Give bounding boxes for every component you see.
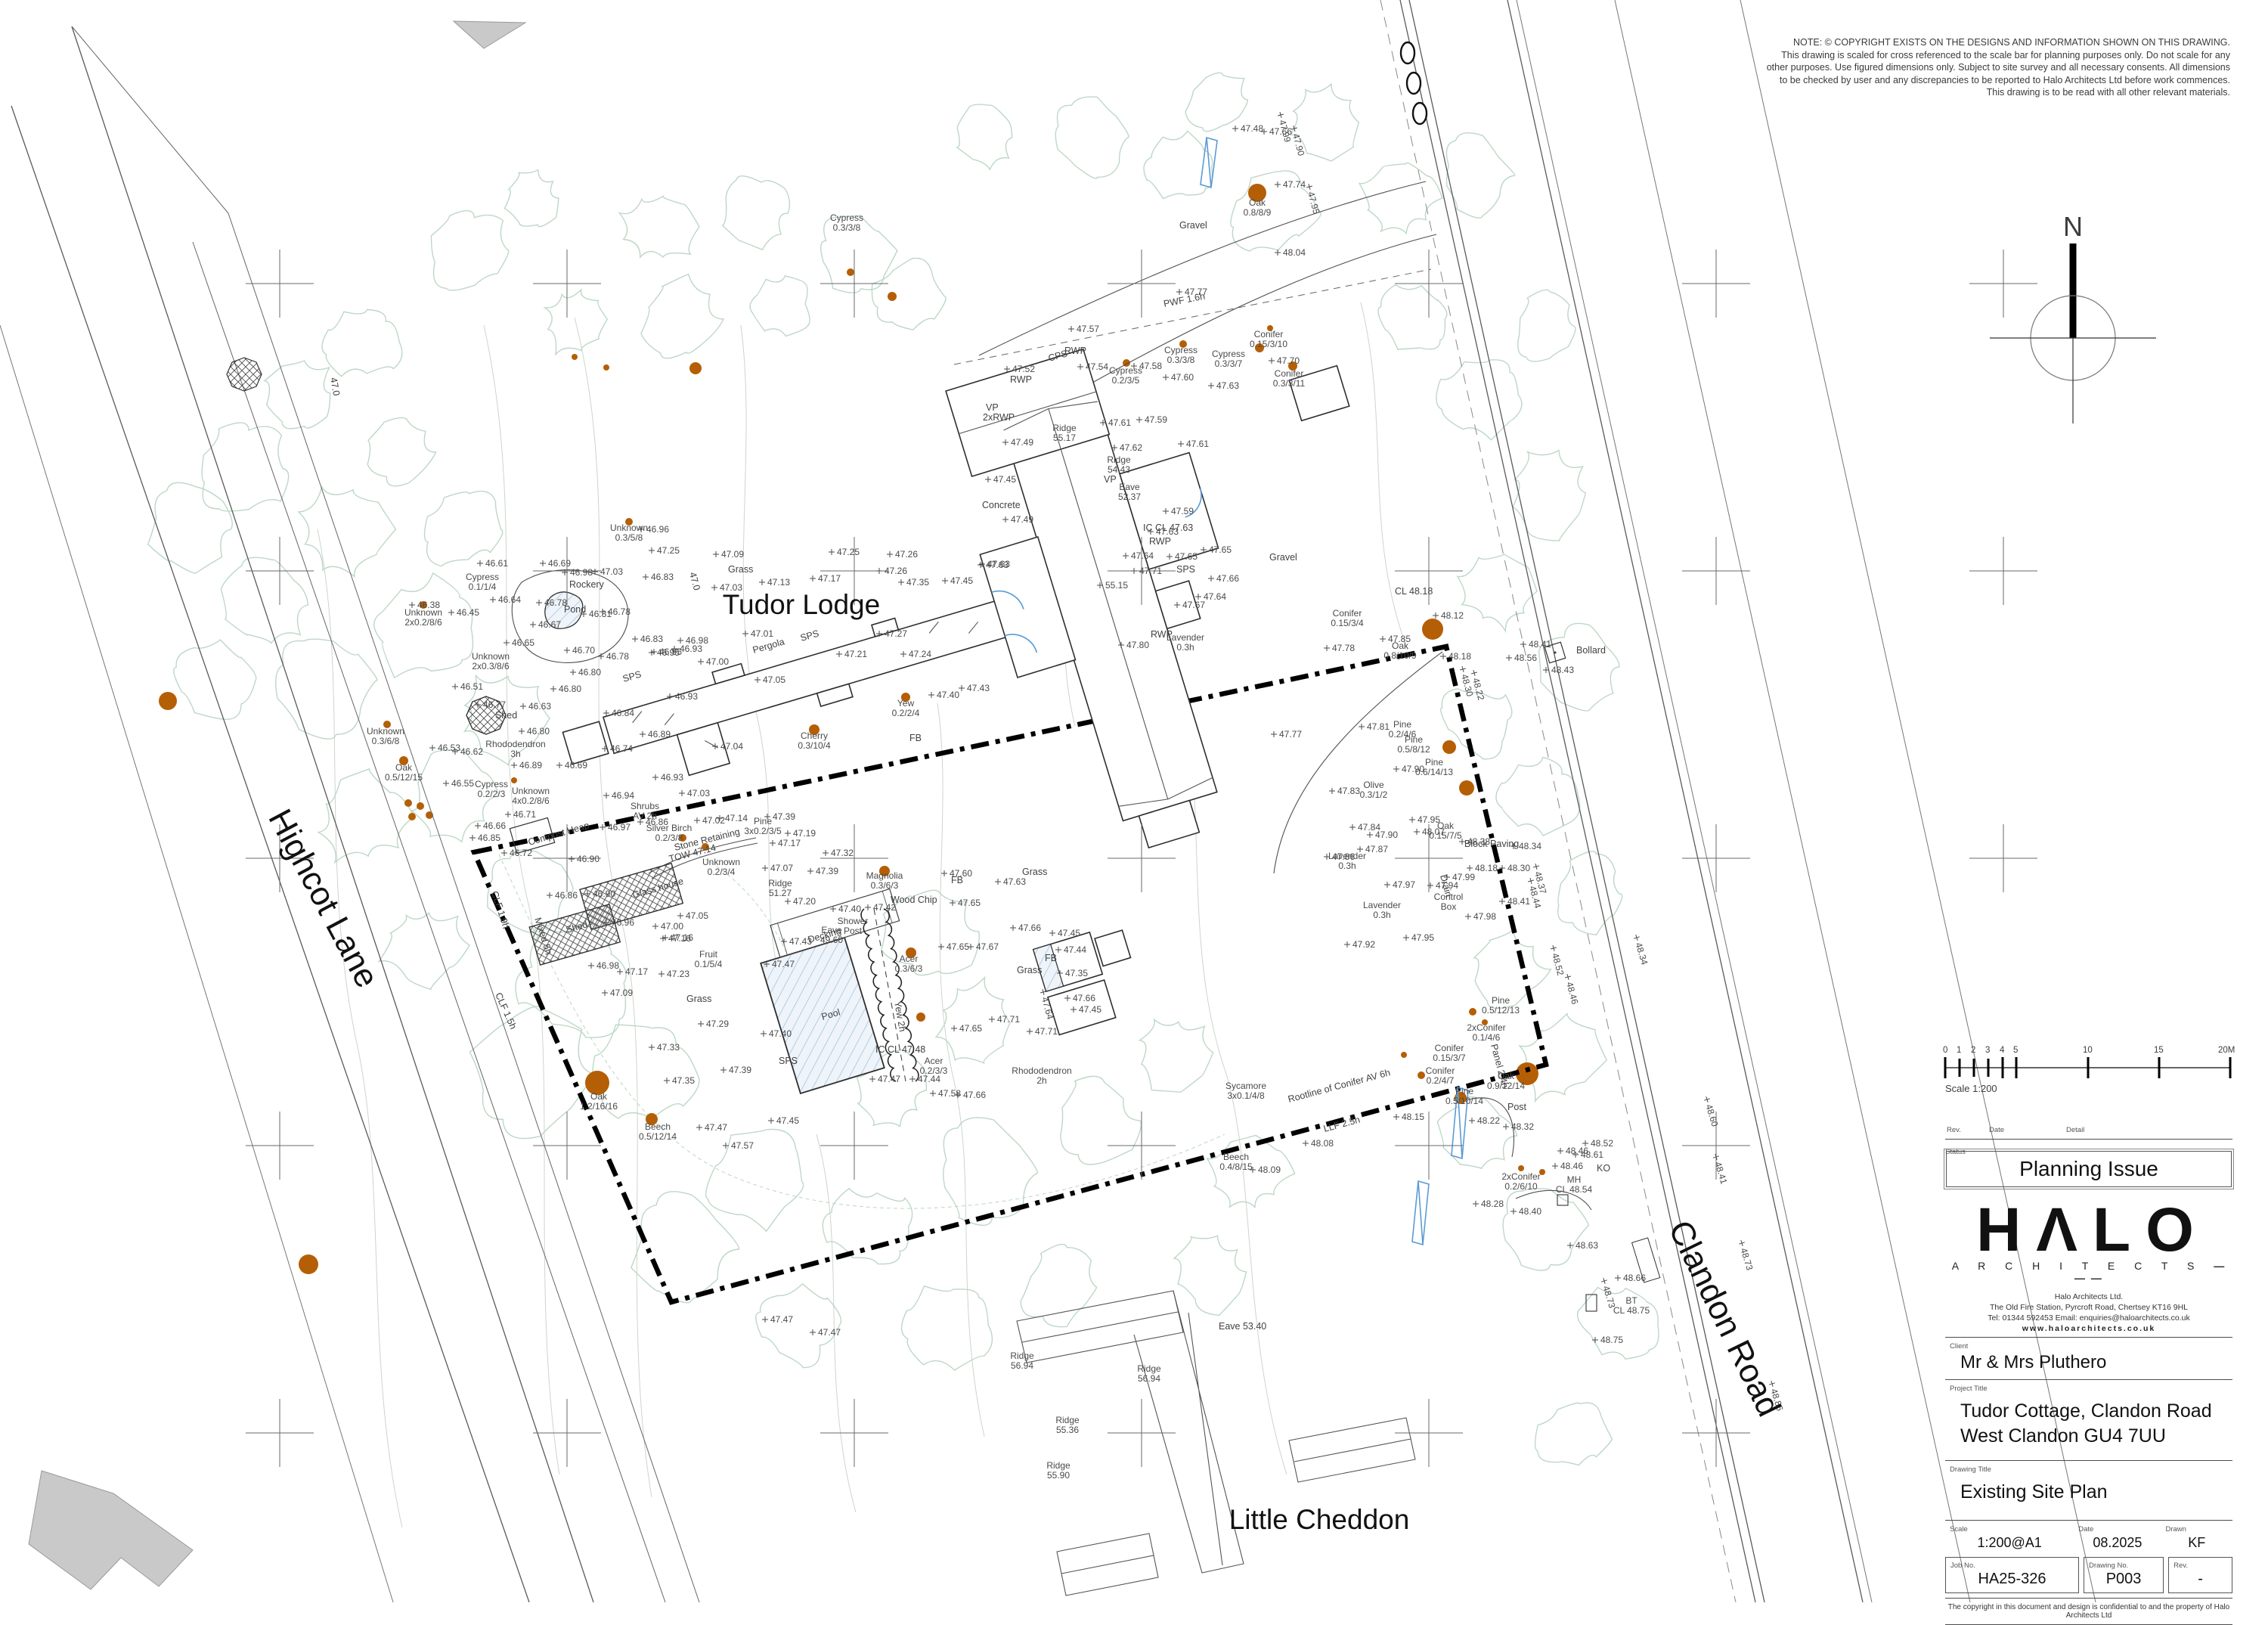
spot-height: 47.71 (1027, 1026, 1058, 1037)
svg-text:48.04: 48.04 (1283, 247, 1306, 258)
tree-schedule-label: Oak0.5/12/15 (385, 762, 423, 783)
spot-height: 46.78 (598, 651, 629, 662)
number-boxes-row: Job No. HA25-326 Drawing No. P003 Rev. - (1945, 1555, 2232, 1598)
svg-text:47.97: 47.97 (1393, 879, 1415, 890)
svg-text:47.87: 47.87 (1365, 844, 1388, 854)
grid-cross-icon (1969, 824, 2037, 892)
project-line1: Tudor Cottage, Clandon Road (1960, 1399, 2228, 1424)
project-label: Project Title (1950, 1385, 1988, 1393)
svg-text:46.86: 46.86 (555, 890, 578, 901)
practice-name: Halo Architects Ltd. (1945, 1292, 2232, 1302)
feature-label: CLF 1.5h (493, 991, 519, 1031)
scale-tick: 4 (2000, 1046, 2005, 1055)
job-no-value: HA25-326 (1950, 1571, 2074, 1588)
svg-text:46.45: 46.45 (457, 607, 479, 618)
grid-cross-icon (246, 1112, 314, 1180)
svg-text:47.09: 47.09 (721, 549, 744, 560)
tree-schedule-label: Unknown2x0.2/8/6 (404, 607, 442, 628)
svg-text:47.47: 47.47 (772, 959, 795, 969)
tree-schedule-label: ShrubsAV 2h (631, 801, 659, 821)
copyright-line: other purposes. Use figured dimensions o… (1731, 61, 2230, 74)
svg-text:46.65: 46.65 (512, 637, 534, 648)
copyright-line: NOTE: © COPYRIGHT EXISTS ON THE DESIGNS … (1731, 36, 2230, 49)
spot-height: 46.98 (588, 960, 619, 971)
tree-schedule-label: Ridge51.27 (768, 878, 792, 898)
tree-schedule-label: Ridge55.36 (1055, 1415, 1080, 1435)
spot-height: 47.59 (1136, 414, 1167, 425)
spot-height: 47.17 (810, 573, 841, 584)
tree-canopy (431, 211, 508, 290)
tree-schedule-label: Ridge55.90 (1046, 1460, 1070, 1481)
drawing-title-section: Drawing Title Existing Site Plan (1945, 1460, 2232, 1520)
svg-text:46.80: 46.80 (559, 684, 581, 694)
feature-label: VP (1104, 474, 1117, 485)
tree-canopy (1503, 1189, 1588, 1270)
svg-text:47.74: 47.74 (1283, 179, 1306, 190)
svg-text:48.56: 48.56 (1514, 653, 1537, 663)
tree-canopy (1535, 1403, 1613, 1465)
svg-text:47.45: 47.45 (1058, 928, 1080, 938)
grid-cross-icon (246, 250, 314, 318)
spot-height: 46.51 (452, 681, 483, 692)
spot-height: 47.07 (762, 863, 793, 873)
tree-schedule-label: Rhododendron2h (1012, 1065, 1071, 1086)
spot-height: 48.41 (1710, 1152, 1729, 1186)
detail-col-label: Detail (2066, 1126, 2084, 1134)
svg-text:47.66: 47.66 (1018, 923, 1041, 933)
tree-schedule-label: Ridge55.17 (1052, 423, 1077, 443)
spot-height: 47.25 (649, 545, 680, 556)
spot-height: 46.93 (652, 772, 683, 783)
status-value: Planning Issue (2019, 1157, 2158, 1181)
svg-text:46.80: 46.80 (578, 667, 601, 678)
tree-schedule-label: Olive0.3/1/2 (1360, 780, 1388, 800)
svg-text:46.64: 46.64 (498, 594, 521, 605)
grid-cross-icon (1682, 1399, 1750, 1467)
tree-trunk-icon (847, 268, 854, 276)
halo-logo-text: HΛLO (1953, 1202, 2232, 1258)
grid-cross-icon (246, 537, 314, 605)
spot-height: 47.45 (1049, 928, 1080, 938)
svg-text:46.97: 46.97 (608, 822, 631, 833)
tree-canopy (823, 1189, 912, 1264)
tree-schedule-label: Conifer0.2/4/7 (1426, 1065, 1455, 1086)
drawn-value: KF (2165, 1535, 2228, 1551)
svg-text:47.83: 47.83 (1337, 786, 1360, 796)
feature-label: 47.0 (687, 571, 702, 591)
date-col-label: Date (1989, 1126, 2004, 1134)
svg-text:47.65: 47.65 (959, 1023, 982, 1034)
svg-text:47.05: 47.05 (763, 674, 785, 685)
svg-text:47.58: 47.58 (1139, 361, 1162, 371)
spot-height: 46.95 (651, 647, 682, 657)
svg-text:46.51: 46.51 (460, 681, 483, 692)
tree-canopy (641, 274, 723, 358)
svg-text:47.40: 47.40 (838, 904, 861, 914)
tree-canopy (367, 417, 435, 485)
tree-schedule-label: Unknown0.3/6/8 (367, 726, 404, 746)
tree-trunk-icon (1442, 740, 1456, 754)
tree-canopy (1174, 1236, 1246, 1315)
tree-canopy (174, 640, 256, 719)
feature-label: Compost Heap (527, 820, 590, 847)
tree-canopy (1496, 757, 1580, 836)
spot-height: 48.73 (1736, 1239, 1755, 1272)
place-name-label: Tudor Lodge (723, 589, 880, 620)
svg-text:47.26: 47.26 (895, 549, 918, 560)
svg-text:47.67: 47.67 (1182, 600, 1205, 610)
svg-text:46.96: 46.96 (646, 524, 669, 535)
svg-text:47.35: 47.35 (1065, 968, 1088, 978)
copyright-line: This drawing is to be read with all othe… (1731, 86, 2230, 99)
feature-label: Wood Chip (891, 895, 937, 905)
svg-text:46.84: 46.84 (612, 708, 634, 718)
spot-height: 46.65 (503, 637, 534, 648)
feature-label: 2xRWP (983, 412, 1015, 423)
site-plan-sheet: { "copyright": [ "NOTE: © COPYRIGHT EXIS… (0, 0, 2268, 1602)
feature-label: Pond (564, 604, 586, 615)
spot-height: 47.43 (959, 683, 990, 693)
tree-trunk-icon (417, 802, 424, 810)
svg-text:46.71: 46.71 (513, 809, 536, 820)
svg-text:47.49: 47.49 (1011, 514, 1033, 525)
spot-height: 47.40 (928, 690, 959, 700)
svg-text:47.62: 47.62 (1120, 442, 1142, 453)
spot-height: 46.71 (505, 809, 536, 820)
svg-text:46.78: 46.78 (608, 606, 631, 617)
svg-text:47.17: 47.17 (625, 966, 648, 977)
svg-text:47.39: 47.39 (816, 866, 838, 876)
spot-height: 47.13 (759, 577, 790, 588)
spot-height: 47.95 (1409, 814, 1440, 825)
spot-height: 47.03 (592, 566, 623, 577)
project-title: Tudor Cottage, Clandon Road West Clandon… (1950, 1399, 2228, 1454)
spot-height: 47.60 (1163, 372, 1194, 383)
svg-text:47.81: 47.81 (1367, 721, 1390, 732)
feature-label: KO (1597, 1163, 1610, 1174)
tree-schedule-label: Pine0.5/10/14 (1445, 1086, 1483, 1106)
tree-canopy (706, 1129, 804, 1231)
svg-text:47.05: 47.05 (686, 910, 708, 921)
svg-text:48.30: 48.30 (1507, 863, 1530, 873)
tree-schedule-label: Oak1.2/16/16 (580, 1091, 618, 1112)
svg-text:47.33: 47.33 (657, 1042, 680, 1053)
feature-label: SPS (1176, 564, 1195, 575)
svg-text:47.63: 47.63 (986, 560, 1009, 570)
client-name: Mr & Mrs Pluthero (1950, 1352, 2228, 1373)
spot-height: 47.17 (617, 966, 648, 977)
spot-height: 46.53 (429, 743, 460, 753)
grid-cross-icon (1969, 537, 2037, 605)
scale-tick: 15 (2154, 1046, 2164, 1055)
client-label: Client (1950, 1342, 1968, 1351)
tree-schedule-label: Unknown0.3/5/8 (610, 523, 648, 543)
spot-height: 48.30 (1499, 863, 1530, 873)
tree-trunk-icon (1469, 1008, 1476, 1016)
spot-height: 47.66 (1010, 923, 1041, 933)
tree-schedule-label: Pine0.5/12/13 (1482, 995, 1520, 1016)
svg-text:47.66: 47.66 (1216, 573, 1239, 584)
tree-canopy (545, 290, 608, 355)
svg-text:46.93: 46.93 (661, 772, 683, 783)
svg-text:47.52: 47.52 (1012, 364, 1035, 374)
grid-cross-icon (1682, 537, 1750, 605)
svg-text:47.47: 47.47 (770, 1314, 793, 1325)
spot-height: 46.86 (547, 890, 578, 901)
svg-text:47.45: 47.45 (950, 575, 973, 586)
grid-cross-icon (1395, 1399, 1463, 1467)
feature-label: Post (1507, 1102, 1527, 1112)
grid-cross-icon (533, 250, 601, 318)
tree-trunk-icon (689, 362, 702, 374)
spot-height: 46.72 (501, 848, 532, 858)
neighbour-masses (29, 21, 525, 1589)
spot-height: 46.83 (643, 572, 674, 582)
tree-schedule-label: Cypress0.3/3/8 (1164, 345, 1198, 365)
survey-grid-crosses (246, 250, 2037, 1467)
svg-text:46.96: 46.96 (612, 917, 634, 928)
tree-schedule-label: Unknown4x0.2/8/6 (512, 786, 550, 806)
svg-text:47.02: 47.02 (702, 815, 725, 826)
tree-canopy (619, 197, 699, 258)
svg-text:47.26: 47.26 (885, 566, 907, 576)
svg-text:47.04: 47.04 (720, 741, 743, 752)
tree-schedule-label: Fruit0.1/5/4 (695, 949, 723, 969)
spot-height: 46.94 (603, 790, 634, 801)
copyright-note: NOTE: © COPYRIGHT EXISTS ON THE DESIGNS … (1731, 36, 2230, 99)
svg-text:46.61: 46.61 (485, 558, 508, 569)
svg-text:47.70: 47.70 (1277, 355, 1300, 366)
tree-trunk-icon (572, 354, 578, 360)
tree-schedule-label: Conifer0.15/3/4 (1331, 608, 1364, 628)
tree-canopy (221, 557, 308, 643)
svg-text:47.01: 47.01 (751, 628, 773, 639)
grid-cross-icon (1682, 250, 1750, 318)
svg-text:47.14: 47.14 (725, 813, 748, 823)
svg-text:47.71: 47.71 (1035, 1026, 1058, 1037)
svg-text:47.59: 47.59 (1171, 506, 1194, 516)
spot-height: 47.02 (694, 815, 725, 826)
svg-text:48.34: 48.34 (1633, 941, 1650, 966)
svg-text:48.34: 48.34 (1519, 841, 1541, 851)
tree-schedule-label: Conifer0.15/3/10 (1250, 329, 1287, 349)
svg-text:48.32: 48.32 (1511, 1121, 1534, 1132)
svg-text:46.89: 46.89 (648, 729, 671, 740)
grid-cross-icon (1108, 1399, 1176, 1467)
svg-text:46.90: 46.90 (593, 888, 615, 899)
status-section: Status Planning Issue (1945, 1142, 2232, 1187)
tree-canopy (1436, 360, 1522, 440)
spot-height: 48.28 (1473, 1199, 1504, 1209)
svg-text:47.63: 47.63 (1003, 876, 1026, 887)
spot-height: 48.52 (1548, 944, 1566, 977)
svg-text:47.90: 47.90 (1375, 830, 1398, 840)
spot-height: 46.98 (562, 567, 593, 578)
tree-canopy (1061, 1076, 1141, 1164)
place-name-label: Little Cheddon (1229, 1504, 1410, 1535)
feature-label: IC CL 47.48 (875, 1044, 925, 1055)
svg-text:47.61: 47.61 (1108, 417, 1131, 428)
spot-height: 47.61 (1178, 439, 1209, 449)
tree-trunk-icon (888, 292, 897, 301)
svg-text:47.00: 47.00 (661, 921, 683, 932)
practice-street: The Old Fire Station, Pyrcroft Road, Che… (1945, 1302, 2232, 1313)
tree-schedule-label: Acer0.2/3/3 (920, 1056, 948, 1076)
feature-label: Block Paving (1464, 839, 1519, 849)
svg-text:46.66: 46.66 (483, 820, 506, 831)
spot-height: 46.80 (519, 726, 550, 737)
spot-height: 47.47 (810, 1327, 841, 1338)
practice-address: Halo Architects Ltd. The Old Fire Statio… (1945, 1292, 2232, 1335)
spot-height: 46.90 (569, 854, 600, 864)
svg-text:46.67: 46.67 (538, 619, 561, 630)
spot-height: 47.49 (1002, 514, 1033, 525)
spot-height: 47.47 (762, 1314, 793, 1325)
feature-label: Concrete (982, 500, 1021, 510)
tree-canopy (756, 1284, 841, 1368)
spot-height: 47.19 (785, 828, 816, 839)
tree-canopy (1578, 1288, 1659, 1360)
spot-height: 47.01 (742, 628, 773, 639)
spot-height: 47.17 (770, 838, 801, 848)
scale-tick: 5 (2013, 1046, 2018, 1055)
tree-schedule-label: Cherry0.3/10/4 (798, 730, 831, 751)
spot-height: 47.26 (887, 549, 918, 560)
tree-schedule-label: Cypress0.3/3/8 (830, 212, 863, 233)
feature-label: Bollard (1576, 645, 1606, 656)
grid-cross-icon (820, 1112, 888, 1180)
svg-text:46.69: 46.69 (548, 558, 571, 569)
tree-trunk-icon (1518, 1165, 1524, 1171)
spot-height: 46.55 (443, 778, 474, 789)
svg-text:48.18: 48.18 (1475, 863, 1498, 873)
rev-no-label: Rev. (2173, 1561, 2188, 1570)
svg-text:46.80: 46.80 (527, 726, 550, 737)
spot-height: 46.83 (632, 634, 663, 644)
feature-label: RWP (1010, 374, 1032, 385)
svg-text:48.46: 48.46 (1564, 981, 1580, 1006)
scale-tick: 1 (1957, 1046, 1961, 1055)
tree-canopy (1437, 1097, 1517, 1168)
svg-text:48.40: 48.40 (1519, 1206, 1541, 1217)
rev-col-label: Rev. (1947, 1126, 1961, 1134)
scale-tick: 0 (1943, 1046, 1947, 1055)
svg-text:46.62: 46.62 (460, 746, 483, 757)
svg-text:48.28: 48.28 (1481, 1199, 1504, 1209)
svg-text:47.90: 47.90 (1290, 132, 1306, 157)
svg-text:47.45: 47.45 (1079, 1004, 1101, 1015)
grid-cross-icon (533, 1112, 601, 1180)
svg-text:47.45: 47.45 (776, 1115, 799, 1126)
svg-text:48.52: 48.52 (1550, 952, 1566, 977)
svg-text:47.95: 47.95 (1306, 191, 1321, 216)
svg-text:48.41: 48.41 (1712, 1161, 1729, 1186)
tree-canopy (1458, 554, 1537, 631)
tree-schedule-label: BTCL 48.75 (1613, 1295, 1650, 1316)
place-name-label: Clandon Road (1661, 1214, 1787, 1422)
svg-text:47.20: 47.20 (793, 896, 816, 907)
tree-schedule-label: Acer0.3/6/3 (895, 954, 923, 974)
svg-text:48.09: 48.09 (1258, 1164, 1281, 1175)
scale-tick: 20M (2218, 1046, 2235, 1055)
svg-text:48.08: 48.08 (1311, 1138, 1334, 1149)
svg-text:47.47: 47.47 (878, 1074, 900, 1084)
tree-canopy (470, 1006, 593, 1139)
svg-text:46.72: 46.72 (510, 848, 532, 858)
spot-height: 46.80 (570, 667, 601, 678)
spot-height: 47.25 (829, 547, 860, 557)
svg-text:47.00: 47.00 (706, 656, 729, 667)
svg-text:46.77: 46.77 (483, 699, 506, 710)
spot-height: 46.66 (475, 820, 506, 831)
date-label: Date (2078, 1525, 2093, 1534)
svg-text:47.65: 47.65 (1209, 544, 1232, 555)
spot-height: 46.69 (540, 558, 571, 569)
scale-caption: Scale 1:200 (1945, 1083, 1997, 1094)
status-box: Planning Issue (1946, 1151, 2232, 1187)
svg-text:48.43: 48.43 (1551, 665, 1574, 675)
svg-text:47.32: 47.32 (831, 848, 854, 858)
tree-schedule-label: Oak0.8/8/9 (1244, 197, 1272, 218)
svg-text:47.29: 47.29 (706, 1019, 729, 1029)
svg-text:47.80: 47.80 (1126, 640, 1149, 650)
grid-cross-icon (1395, 250, 1463, 318)
svg-text:47.23: 47.23 (667, 969, 689, 979)
spot-height: 48.12 (1433, 610, 1464, 621)
svg-text:47.98: 47.98 (1473, 911, 1496, 922)
drawing-no-value: P003 (2089, 1571, 2158, 1588)
feature-label: SPS (799, 628, 820, 643)
spot-height: 47.95 (1403, 932, 1434, 943)
tree-trunk-icon (408, 813, 416, 820)
tree-canopy (148, 482, 233, 573)
practice-website: www.haloarchitects.co.uk (1945, 1323, 2232, 1334)
spot-height: 47.58 (930, 1088, 961, 1099)
svg-text:47.99: 47.99 (1452, 872, 1475, 882)
tree-trunk-icon (1459, 780, 1474, 795)
spot-height: 46.69 (556, 760, 587, 771)
tree-schedule-label: Yew0.2/2/4 (892, 698, 920, 718)
spot-height: 46.78 (536, 597, 567, 608)
feature-label: Grass (1022, 867, 1047, 877)
spot-height: 47.83 (1329, 786, 1360, 796)
tree-canopy (265, 361, 330, 429)
tree-trunk-icon (404, 799, 412, 807)
spot-height: 47.32 (823, 848, 854, 858)
tree-canopy (1474, 930, 1551, 1009)
tree-canopy (1446, 133, 1514, 218)
svg-text:47.21: 47.21 (844, 649, 867, 659)
feature-label: VP (986, 402, 999, 413)
drawing-title-label: Drawing Title (1950, 1465, 1991, 1474)
spot-height: 47.65 (951, 1023, 982, 1034)
feature-label: FB (1045, 953, 1057, 963)
svg-text:46.70: 46.70 (572, 645, 595, 656)
spot-height: 48.32 (1503, 1121, 1534, 1132)
svg-text:46.55: 46.55 (451, 778, 474, 789)
feature-label: Rockery (569, 579, 605, 590)
spot-height: 48.22 (1469, 1115, 1500, 1126)
spot-height: 48.46 (1552, 1161, 1583, 1171)
svg-text:47.77: 47.77 (1279, 729, 1302, 740)
svg-text:46.93: 46.93 (680, 643, 702, 654)
tree-schedule-label: Beech0.4/8/15 (1219, 1152, 1253, 1172)
svg-text:46.90: 46.90 (577, 854, 600, 864)
spot-height: 48.34 (1631, 933, 1650, 966)
tree-canopy (1139, 1019, 1213, 1092)
spot-height: 47.66 (1208, 573, 1239, 584)
little-cheddon-buildings (1017, 1291, 1415, 1596)
